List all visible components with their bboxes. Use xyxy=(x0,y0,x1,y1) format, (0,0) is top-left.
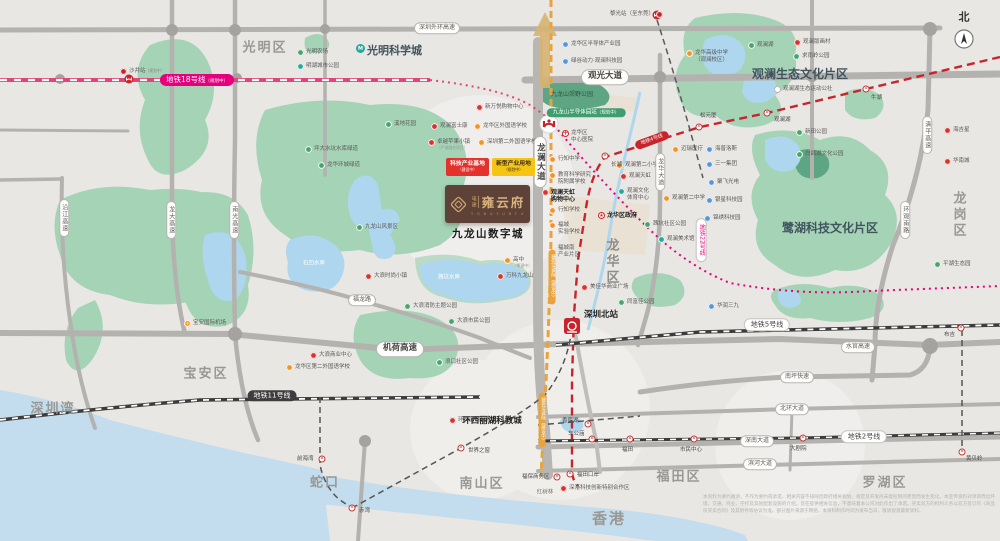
district-label: 香港 xyxy=(592,512,626,527)
road-label: 清平高速 xyxy=(922,116,932,154)
red-poi-icon xyxy=(944,127,951,134)
poi-item: 浪口社区公园 xyxy=(436,359,478,366)
poi-label: 高中（筹建中） xyxy=(513,257,532,268)
poi-label: 观澜天虹购物中心 xyxy=(551,189,575,203)
poi-item: 大浪市民公园 xyxy=(448,318,490,325)
poi-item: 行知学校 xyxy=(549,207,580,214)
poi-label: 观澜富士康 xyxy=(440,123,468,130)
poi-item: 深圳第二外国语学校 xyxy=(478,139,537,146)
poi-label: 行知学校 xyxy=(558,207,580,214)
poi-item: 卓越苹果小镇（产城融合项目） xyxy=(428,139,470,150)
poi-item: 龙华区半导体产业园 xyxy=(562,41,621,48)
orange-poi-icon xyxy=(474,123,481,130)
metro-label-note: （规划中） xyxy=(597,110,620,115)
poi-item: 华南城 xyxy=(944,158,970,165)
red-poi-icon xyxy=(542,189,549,196)
red-poi-icon xyxy=(944,158,951,165)
poi-label: 新田公园 xyxy=(805,129,827,136)
red-poi-icon xyxy=(794,39,801,46)
poi-label: 海吉星 xyxy=(953,127,970,134)
poi-label: 观澜湖生态运动公社 xyxy=(783,86,833,93)
orange-poi-icon xyxy=(549,222,556,229)
poi-item: 新田公园 xyxy=(796,129,827,136)
orange-poi-icon xyxy=(504,257,511,264)
poi-label: 华润三九 xyxy=(717,303,739,310)
poi-label: 银星科技园 xyxy=(715,197,743,204)
map-canvas: 科技产业基地 （建设中） 新型产业用地 （规划中） 电建 雍云府 Y O N G… xyxy=(0,0,1000,541)
poi-item: 黎光站（至东莞） xyxy=(610,11,663,18)
road-label: 深圳外环高速 xyxy=(414,22,460,34)
orange-poi-icon xyxy=(686,50,693,57)
metro-label-note: （规划中） xyxy=(206,79,229,84)
poi-item: 大浪消防主题公园 xyxy=(404,303,457,310)
poi-label: 平湖生态园 xyxy=(943,261,971,268)
road-label: 观光大道 xyxy=(581,69,629,85)
district-label: 南山区 xyxy=(459,478,504,491)
poi-item: ✈宝安国际机场 xyxy=(184,320,226,327)
poi-item: 深港科技创新特别合作区 xyxy=(560,485,630,492)
road-label: 北环大道 xyxy=(775,403,809,415)
poi-item: 迈瑞医疗 xyxy=(672,146,703,153)
poi-label: 观澜第二小学 xyxy=(625,162,658,169)
poi-label: 龙华区外国语学校 xyxy=(483,123,527,130)
poi-item: 求雨岭公园 xyxy=(793,53,830,60)
poi-label: 海普洛斯 xyxy=(715,146,737,153)
poi-item: 茜坑社区公园 xyxy=(644,221,686,228)
cross-poi-icon: ＋ xyxy=(562,130,569,137)
station-x-icon: ✕ xyxy=(589,436,596,443)
poi-label: 深港科技创新特别合作区 xyxy=(569,485,630,492)
road-label: 南光高速 xyxy=(229,201,239,239)
white-poi-icon xyxy=(774,86,781,93)
star-poi-icon: ★ xyxy=(598,212,605,219)
poi-label: 茜坑社区公园 xyxy=(653,221,686,228)
poi-item: ＋龙华区中心医院 xyxy=(562,130,593,143)
green-poi-icon xyxy=(934,261,941,268)
station-label: 福保商务区 xyxy=(522,472,550,480)
teal-poi-icon xyxy=(618,188,625,195)
blue-poi-icon xyxy=(562,58,569,65)
red-poi-icon xyxy=(365,273,372,280)
district-label: 龙岗区 xyxy=(952,191,965,239)
poi-label: 龙华区政府 xyxy=(607,212,637,219)
poi-label: 观澜美术馆 xyxy=(667,236,695,243)
metro-line-label: 地铁5号线 xyxy=(744,318,790,331)
poi-label: 光明科学城 xyxy=(367,44,422,57)
poi-item: 绿谷动力·观澜科技园 xyxy=(562,58,622,65)
poi-label: 华南城 xyxy=(953,158,970,165)
poi-item: 教育科学研究院附属学校 xyxy=(549,172,591,185)
map-text-label: 深圳北站 xyxy=(584,311,618,320)
road-label: 福龙路 xyxy=(348,294,376,306)
poi-item: 坪大水坑水库绿道 xyxy=(305,146,358,153)
poi-label: 观澜湖 xyxy=(757,42,774,49)
poi-item: 观澜富士康 xyxy=(431,123,468,130)
plane-poi-icon: ✈ xyxy=(184,320,191,327)
poi-item: 福城实验学校 xyxy=(549,222,580,235)
poi-label: 观澜第二中学 xyxy=(672,195,705,202)
station-label: 前海湾 xyxy=(297,454,314,462)
metro-line-label: 地铁2号线 xyxy=(841,430,887,443)
poi-item: 观澜版画村 xyxy=(794,39,831,46)
red-poi-icon xyxy=(431,123,438,130)
poi-item: 福城南产业片区 xyxy=(558,245,580,258)
metro-line-label: 地铁18号线（规划中） xyxy=(160,74,234,86)
poi-item: 观澜湖生态运动公社 xyxy=(774,86,833,93)
poi-item: 龙华环城绿道 xyxy=(318,162,360,169)
poi-label: 福城南产业片区 xyxy=(558,245,580,258)
poi-label: 溪地花园 xyxy=(394,121,416,128)
station-x-icon: ✕ xyxy=(349,505,356,512)
poi-label: 大浪时尚小镇 xyxy=(374,273,407,280)
poi-label: 聚飞光电 xyxy=(717,179,739,186)
metro-line-label: 九龙山半导体园站（规划中） xyxy=(547,108,626,117)
green-poi-icon xyxy=(618,299,625,306)
poi-item: 平湖生态园 xyxy=(934,261,971,268)
district-label: 福田区 xyxy=(656,471,701,484)
poi-label: 教育科学研究院附属学校 xyxy=(558,172,591,185)
green-poi-icon xyxy=(796,129,803,136)
poi-label: 求雨岭公园 xyxy=(802,53,830,60)
blue-poi-icon xyxy=(708,179,715,186)
station-x-icon: ✕ xyxy=(958,325,965,332)
new-industry-land-badge: 新型产业用地 （规划中） xyxy=(492,158,535,176)
poi-item: 光明农场 xyxy=(297,49,328,56)
red-poi-icon xyxy=(310,352,317,359)
orange-poi-icon xyxy=(549,207,556,214)
orange-poi-icon xyxy=(549,156,556,163)
poi-item: 龙华区第二外国语学校 xyxy=(286,364,350,371)
poi-label: 九龙山风景区 xyxy=(365,224,398,231)
red-poi-icon xyxy=(476,104,483,111)
poi-label: 宝安国际机场 xyxy=(193,320,226,327)
road-label: 龙大高速 xyxy=(166,201,176,239)
compass-icon xyxy=(955,30,973,48)
poi-label: 龙华高级中学（观澜校区） xyxy=(695,50,728,63)
disclaimer-text: 本资料为要约邀请，不作为要约或承诺，相关内容不排除因政府相关规划、规定及开发商未… xyxy=(703,494,995,515)
road-label: 龙澜大道 xyxy=(534,136,547,188)
district-label: 罗湖区 xyxy=(862,477,907,490)
station-label: 世界之窗 xyxy=(468,446,490,454)
blue-poi-icon xyxy=(706,197,713,204)
tech-industry-base-badge: 科技产业基地 （建设中） xyxy=(446,158,489,176)
station-x-icon: ✕ xyxy=(764,110,771,117)
poi-item: 观澜第二小学 xyxy=(616,162,658,169)
poi-item: 观澜湖 xyxy=(748,42,774,49)
green-poi-icon xyxy=(448,318,455,325)
knot-icon xyxy=(450,196,467,213)
blue-poi-icon xyxy=(562,41,569,48)
station-label: 黄贝岭 xyxy=(966,454,983,462)
poi-label: 坪大水坑水库绿道 xyxy=(314,146,358,153)
poi-label: 龙华区半导体产业园 xyxy=(571,41,621,48)
station-label: 布吉 xyxy=(944,330,955,338)
blue-poi-icon xyxy=(708,303,715,310)
green-poi-icon xyxy=(318,162,325,169)
poi-item: 观澜美术馆 xyxy=(658,236,695,243)
orange-poi-icon xyxy=(478,139,485,146)
station-label: 车公庙 xyxy=(568,429,585,437)
station-x-icon: ✕ xyxy=(585,421,592,428)
orange-poi-icon xyxy=(672,146,679,153)
map-text-label: 鹭湖科技文化片区 xyxy=(782,222,878,234)
station-label: 观澜湖 xyxy=(774,115,791,123)
station-label: 赤湾 xyxy=(359,506,370,514)
metro-line-label: 穗莞深城际（建设中） xyxy=(539,393,546,448)
station-x-icon: ✕ xyxy=(567,471,574,478)
station-label: 牛湖 xyxy=(871,93,882,101)
red-poi-icon xyxy=(428,139,435,146)
green-poi-icon xyxy=(748,42,755,49)
poi-label: 白鸽湖文化公园 xyxy=(805,151,844,158)
poi-label: 新万悦购物中心 xyxy=(485,104,524,111)
orange-poi-icon xyxy=(663,195,670,202)
poi-item: ★龙华区政府 xyxy=(598,212,637,219)
metro-logo-icon xyxy=(540,115,558,133)
poi-item: 沙井站（规划中） xyxy=(120,68,165,75)
road-label: 环观南路 xyxy=(900,201,910,239)
badge-note: （建设中） xyxy=(458,168,477,173)
metro-poi-icon xyxy=(656,11,663,18)
green-poi-icon xyxy=(297,49,304,56)
poi-item: 同富佳公园 xyxy=(618,299,655,306)
poi-label: 同富佳公园 xyxy=(627,299,655,306)
poi-label: 美佳华商业广场 xyxy=(590,284,629,291)
orange-poi-icon xyxy=(286,364,293,371)
station-x-icon: ✕ xyxy=(602,153,609,160)
poi-label: 卓越苹果小镇（产城融合项目） xyxy=(437,139,470,150)
station-label: 福田 xyxy=(622,445,633,453)
road-label: 机荷高速 xyxy=(376,341,424,357)
poi-label: 行知中学 xyxy=(558,156,580,163)
station-x-icon: ✕ xyxy=(800,435,807,442)
poi-item: 观澜第二中学 xyxy=(663,195,705,202)
map-base-layer xyxy=(0,0,1000,541)
metro-poi-icon xyxy=(120,68,127,75)
map-text-label: 观澜生态文化片区 xyxy=(752,68,848,80)
district-label: 光明区 xyxy=(242,42,287,55)
poi-label: 龙华环城绿道 xyxy=(327,162,360,169)
metro-line-label: 地铁22号线 xyxy=(696,218,707,262)
poi-label: 黎光站（至东莞） xyxy=(610,11,654,18)
red-poi-icon xyxy=(449,417,456,424)
poi-item: 大浪商业中心 xyxy=(310,352,352,359)
poi-label: 大浪消防主题公园 xyxy=(413,303,457,310)
station-x-icon: ✕ xyxy=(554,474,561,481)
station-label: 香蜜湖 xyxy=(562,416,579,424)
poi-label: 沙井站（规划中） xyxy=(129,68,165,75)
poi-item: 海吉星 xyxy=(944,127,970,134)
poi-item: 美佳华商业广场 xyxy=(581,284,629,291)
poi-item: 聚飞光电 xyxy=(708,179,739,186)
poi-label: 观澜天虹 xyxy=(629,173,651,180)
poi-item: 高中（筹建中） xyxy=(504,257,532,268)
district-label: 蛇口 xyxy=(310,477,340,490)
road-label: 水官高速 xyxy=(841,341,875,353)
teal-poi-icon: M xyxy=(356,44,365,53)
poi-item: 龙华高级中学（观澜校区） xyxy=(686,50,728,63)
poi-item: 海普洛斯 xyxy=(706,146,737,153)
teal-poi-icon xyxy=(658,236,665,243)
poi-label: 光明农场 xyxy=(306,49,328,56)
blue-poi-icon xyxy=(706,161,713,168)
district-label: 龙华区 xyxy=(605,238,618,286)
station-x-icon: ✕ xyxy=(696,124,703,131)
map-text-label: 石凹水库 xyxy=(303,261,325,267)
green-poi-icon xyxy=(356,224,363,231)
road-label: 沿江高速 xyxy=(59,199,69,237)
poi-label: 大浪商业中心 xyxy=(319,352,352,359)
station-label: 福田口岸 xyxy=(577,470,599,478)
poi-label: 明湖城市公园 xyxy=(306,63,339,70)
station-label: 大剧院 xyxy=(790,444,807,452)
road-label: 滨河大道 xyxy=(743,458,777,470)
station-x-icon: ✕ xyxy=(458,445,465,452)
metro-line-label: 穗莞深城际（建设中） xyxy=(549,250,556,305)
poi-label: 观澜版画村 xyxy=(803,39,831,46)
poi-label: 三一集团 xyxy=(715,161,737,168)
metro-line-label: 地铁11号线 xyxy=(248,390,297,401)
station-label: 长湖 xyxy=(611,160,622,168)
poi-item: 银星科技园 xyxy=(706,197,743,204)
green-poi-icon xyxy=(793,53,800,60)
poi-label: 锦绣科技园 xyxy=(713,215,741,222)
map-text-label: 环西丽湖科教城 xyxy=(462,417,522,426)
blue-poi-icon xyxy=(706,146,713,153)
badge-note: （规划中） xyxy=(504,168,523,173)
poi-item: 行知中学 xyxy=(549,156,580,163)
station-label: 松元厦 xyxy=(700,111,717,119)
green-poi-icon xyxy=(436,359,443,366)
poi-item: 九龙山风景区 xyxy=(356,224,398,231)
poi-label: 观澜文化体育中心 xyxy=(627,188,649,201)
poi-label: 万科九龙山 xyxy=(506,273,534,280)
poi-label: 迈瑞医疗 xyxy=(681,146,703,153)
station-x-icon: ✕ xyxy=(319,456,326,463)
map-text-label: 茜坑水库 xyxy=(438,275,460,281)
poi-label: 绿谷动力·观澜科技园 xyxy=(571,58,622,65)
orange-poi-icon xyxy=(549,172,556,179)
road-label: 南坪快速 xyxy=(780,371,814,383)
poi-label: 福城实验学校 xyxy=(558,222,580,235)
station-x-icon: ✕ xyxy=(863,86,870,93)
poi-item: 华润三九 xyxy=(708,303,739,310)
poi-label: 深圳第二外国语学校 xyxy=(487,139,537,146)
map-text-label: 北 xyxy=(959,12,970,23)
red-poi-icon xyxy=(620,173,627,180)
poi-label: 大浪市民公园 xyxy=(457,318,490,325)
poi-item: 白鸽湖文化公园 xyxy=(796,151,844,158)
map-text-label: 九龙山数字城 xyxy=(452,229,524,240)
poi-item: 观澜天虹 xyxy=(620,173,651,180)
station-x-icon: ✕ xyxy=(959,449,966,456)
district-label: 宝安区 xyxy=(183,368,228,381)
poi-item: 观澜天虹购物中心 xyxy=(542,189,575,203)
map-text-label: 九龙山郊野公园 xyxy=(551,92,593,98)
poi-item: 观澜文化体育中心 xyxy=(618,188,649,201)
railway-station-icon xyxy=(564,318,580,334)
poi-item: 锦绣科技园 xyxy=(704,215,741,222)
station-label: 市民中心 xyxy=(680,445,702,453)
poi-label: 龙华区中心医院 xyxy=(571,130,593,143)
poi-item: M光明科学城 xyxy=(356,44,422,57)
project-name-en: Y O N G Y U N F U xyxy=(471,212,525,216)
poi-item: 龙华区外国语学校 xyxy=(474,123,527,130)
district-label: 深圳湾 xyxy=(30,403,75,416)
map-text-label: 红树林 xyxy=(537,490,554,496)
poi-item: 万科九龙山 xyxy=(497,273,534,280)
poi-item: 明湖城市公园 xyxy=(297,63,339,70)
teal-poi-icon xyxy=(297,63,304,70)
red-poi-icon xyxy=(581,284,588,291)
green-poi-icon xyxy=(305,146,312,153)
poi-item: 三一集团 xyxy=(706,161,737,168)
project-name: 雍云府 xyxy=(482,192,526,211)
poi-label: 龙华区第二外国语学校 xyxy=(295,364,350,371)
green-poi-icon xyxy=(796,151,803,158)
road-label: 龙华大道 xyxy=(655,153,665,191)
red-poi-icon xyxy=(497,273,504,280)
project-logo-card: 电建 雍云府 Y O N G Y U N F U xyxy=(445,185,530,223)
station-x-icon: ✕ xyxy=(691,436,698,443)
poi-label: 浪口社区公园 xyxy=(445,359,478,366)
station-x-icon: ✕ xyxy=(627,436,634,443)
metro-mini-icon-shajing xyxy=(125,75,134,84)
green-poi-icon xyxy=(385,121,392,128)
green-poi-icon xyxy=(404,303,411,310)
road-label: 深南大道 xyxy=(740,435,774,447)
poi-item: 溪地花园 xyxy=(385,121,416,128)
poi-item: 大浪时尚小镇 xyxy=(365,273,407,280)
poi-item: 新万悦购物中心 xyxy=(476,104,524,111)
project-brand: 电建 xyxy=(471,196,479,208)
red-poi-icon xyxy=(560,485,567,492)
green-poi-icon xyxy=(644,221,651,228)
